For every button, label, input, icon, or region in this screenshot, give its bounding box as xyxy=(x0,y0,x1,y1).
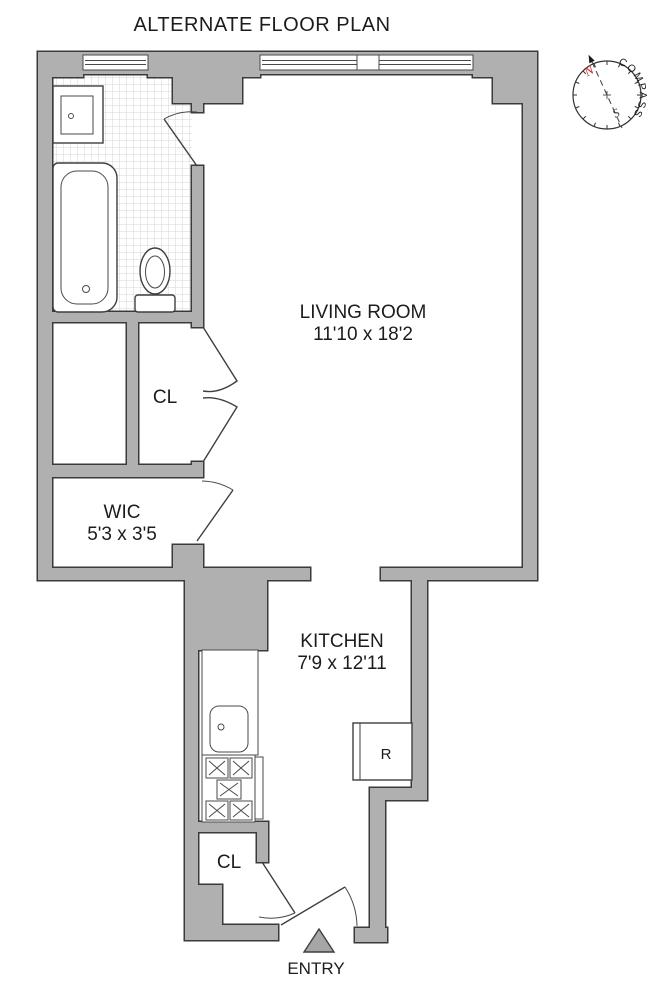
bathroom-sink xyxy=(53,86,103,143)
refrigerator: R xyxy=(353,723,412,780)
bathtub xyxy=(53,163,117,312)
wic-dims: 5'3 x 3'5 xyxy=(87,524,157,545)
living-room-dims: 11'10 x 18'2 xyxy=(313,324,413,345)
wic-door xyxy=(197,481,233,541)
bathroom-window xyxy=(83,55,148,70)
entry-label: ENTRY xyxy=(287,959,344,978)
faucet-icon xyxy=(69,114,74,119)
entry-arrow xyxy=(304,929,334,952)
wic-label: WIC xyxy=(104,502,141,523)
kitchen-closet-door xyxy=(259,862,295,918)
north-arrowhead xyxy=(589,55,595,64)
entry-door xyxy=(281,887,357,926)
kitchen-label: KITCHEN xyxy=(300,631,383,652)
floor-plan: ALTERNATE FLOOR PLAN xyxy=(0,0,657,1000)
compass-icon: N S COMPASS xyxy=(573,55,649,129)
hall-closet-bifold-doors xyxy=(203,327,237,462)
kitchen-dims: 7'9 x 12'11 xyxy=(297,653,386,674)
kitchen-closet-label: CL xyxy=(217,852,241,873)
living-room-window xyxy=(260,55,473,70)
window-mullion xyxy=(357,55,379,70)
kitchen-sink xyxy=(210,706,248,752)
faucet-icon xyxy=(218,724,224,730)
living-room-label: LIVING ROOM xyxy=(300,302,427,323)
hall-closet-label: CL xyxy=(153,387,177,408)
stove-handle xyxy=(255,757,263,819)
drain-icon xyxy=(83,286,90,293)
refrigerator-label: R xyxy=(381,746,392,763)
page-title: ALTERNATE FLOOR PLAN xyxy=(133,14,390,36)
stove xyxy=(202,755,263,822)
floor-plan-page: ALTERNATE FLOOR PLAN xyxy=(0,0,657,1000)
